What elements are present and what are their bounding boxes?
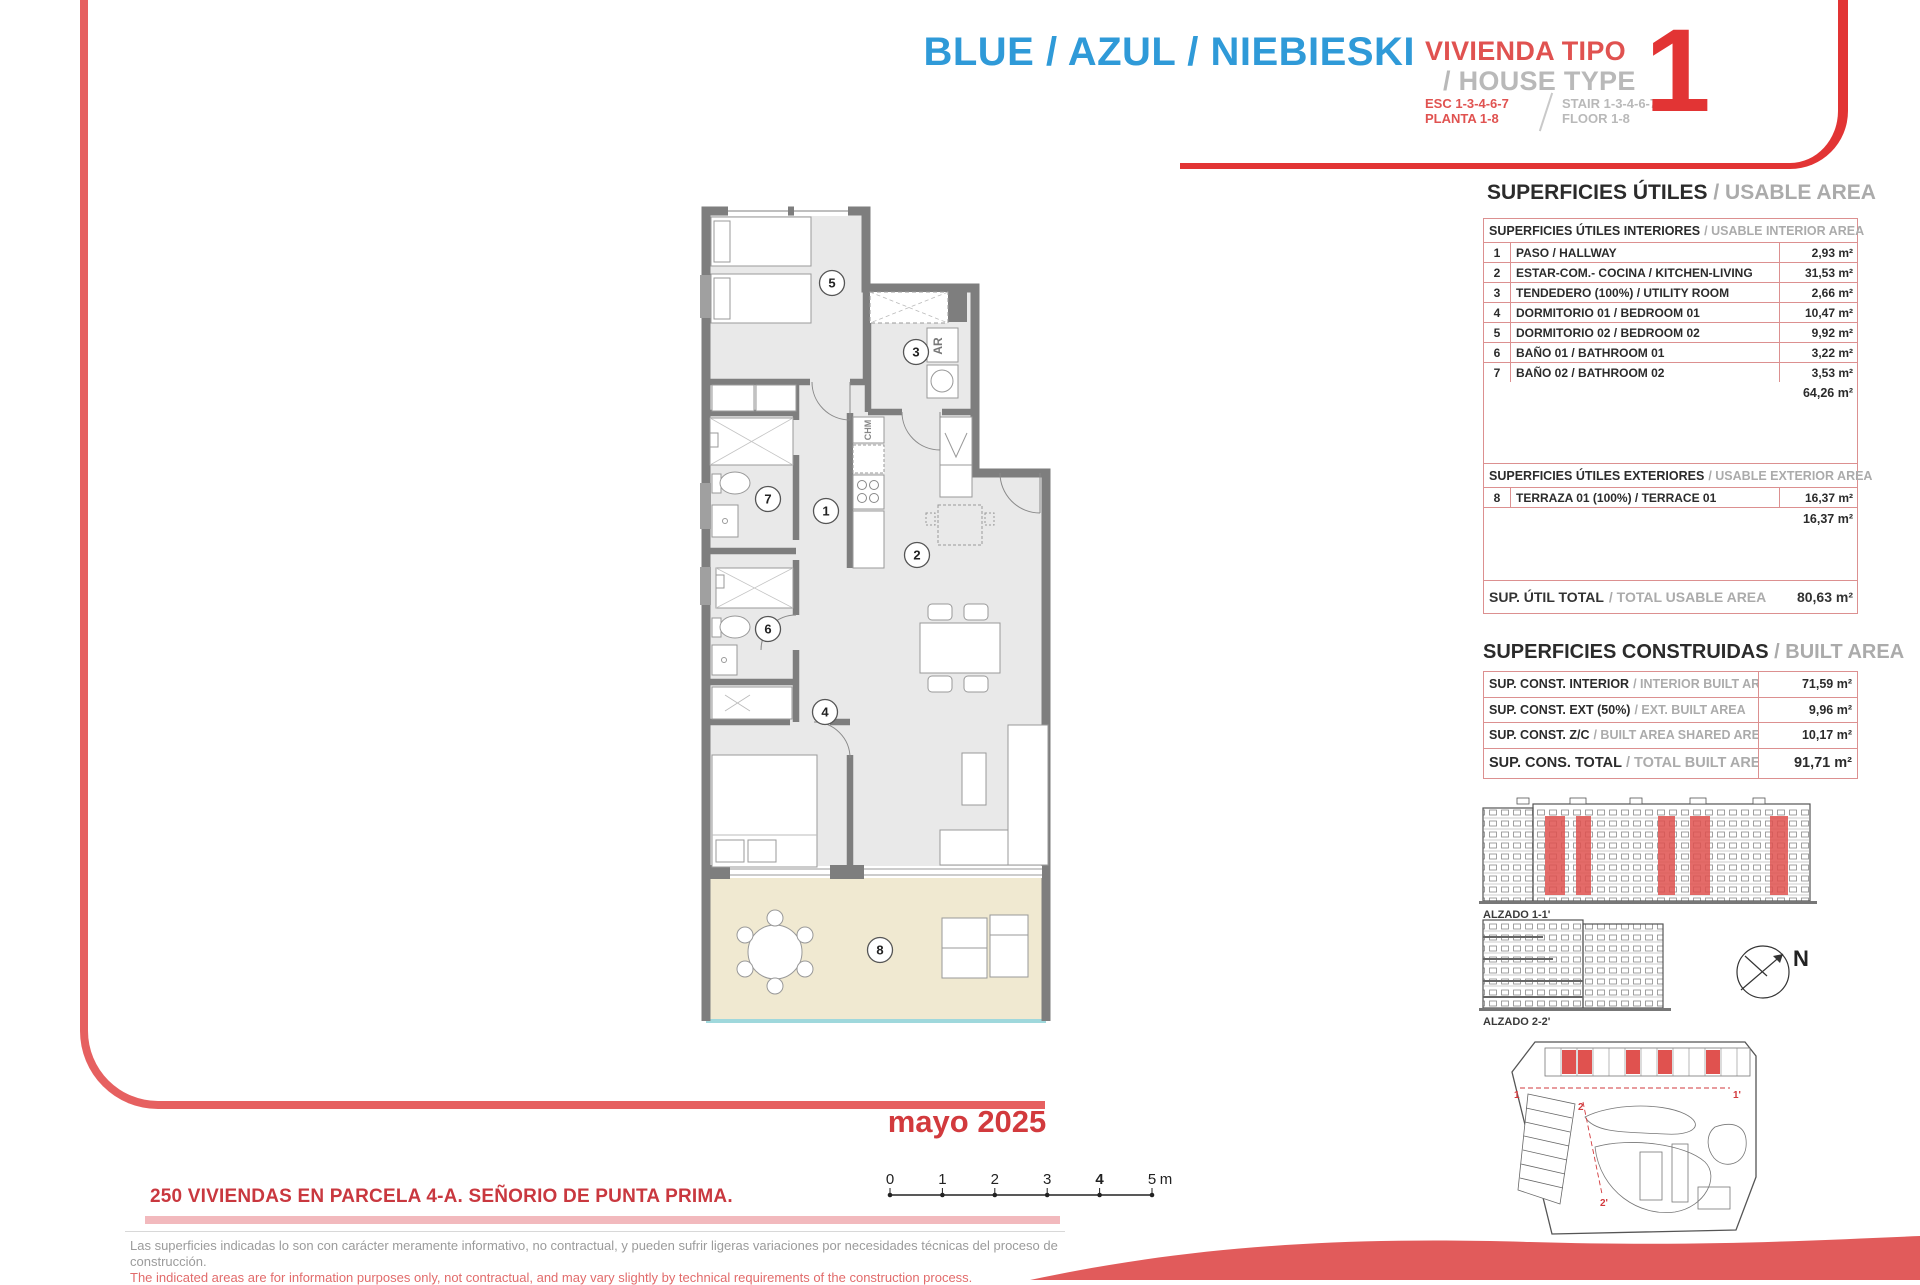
planta-line: PLANTA 1-8 — [1425, 111, 1509, 126]
room-number-8: 8 — [876, 943, 883, 958]
section-mark-2p: 2' — [1600, 1198, 1608, 1209]
site-plan: 1 1' 2 2' — [1500, 1032, 1770, 1242]
interior-header-en: / USABLE INTERIOR AREA — [1704, 224, 1864, 238]
row-area: 31,53 m² — [1779, 263, 1857, 282]
stair-floor-en: STAIR 1-3-4-6-7 FLOOR 1-8 — [1562, 96, 1657, 126]
built-title-en: / BUILT AREA — [1774, 641, 1904, 663]
total-label-es: SUP. ÚTIL TOTAL — [1489, 589, 1604, 605]
interior-header-es: SUPERFICIES ÚTILES INTERIORES — [1489, 224, 1700, 238]
row-num: 1 — [1484, 243, 1511, 262]
table-row: 7 BAÑO 02 / BATHROOM 02 3,53 m² — [1484, 363, 1857, 382]
row-label: BAÑO 01 / BATHROOM 01 — [1511, 343, 1779, 362]
usable-title-es: SUPERFICIES ÚTILES — [1487, 181, 1708, 204]
built-area-table: SUP. CONST. INTERIOR/ INTERIOR BUILT ARE… — [1483, 671, 1858, 779]
usable-area-table: SUPERFICIES ÚTILES INTERIORES / USABLE I… — [1483, 218, 1858, 614]
date-label: mayo 2025 — [882, 1104, 1052, 1140]
built-total-row: SUP. CONS. TOTAL/ TOTAL BUILT AREA 91,71… — [1484, 748, 1857, 778]
usable-title-en: / USABLE AREA — [1713, 181, 1876, 204]
row-label-en: / INTERIOR BUILT AREA — [1633, 677, 1758, 691]
room-number-7: 7 — [764, 492, 771, 507]
row-label: SUP. CONST. Z/C/ BUILT AREA SHARED AREAS — [1484, 723, 1758, 748]
room-number-2: 2 — [913, 548, 920, 563]
table-row: 3 TENDEDERO (100%) / UTILITY ROOM 2,66 m… — [1484, 283, 1857, 303]
built-area-title: SUPERFICIES CONSTRUIDAS / BUILT AREA — [1483, 641, 1904, 664]
row-num: 6 — [1484, 343, 1511, 362]
table-row: 8 TERRAZA 01 (100%) / TERRACE 01 16,37 m… — [1484, 488, 1857, 508]
row-area: 2,66 m² — [1779, 283, 1857, 302]
interior-subtotal: 64,26 m² — [1484, 382, 1857, 403]
table-row: SUP. CONST. INTERIOR/ INTERIOR BUILT ARE… — [1484, 672, 1857, 697]
row-num: 7 — [1484, 363, 1511, 382]
scale-4: 4 — [1095, 1171, 1104, 1188]
exterior-header-es: SUPERFICIES ÚTILES EXTERIORES — [1489, 469, 1704, 483]
ar-label: AR — [931, 337, 945, 355]
row-area: 16,37 m² — [1779, 488, 1857, 507]
disclaimer-es-line1: Las superficies indicadas lo son con car… — [130, 1238, 1090, 1253]
section-mark-1p: 1' — [1733, 1090, 1741, 1101]
table-row: 1 PASO / HALLWAY 2,93 m² — [1484, 243, 1857, 263]
usable-total-row: SUP. ÚTIL TOTAL / TOTAL USABLE AREA 80,6… — [1484, 580, 1857, 613]
table-row: SUP. CONST. Z/C/ BUILT AREA SHARED AREAS… — [1484, 722, 1857, 748]
interior-header: SUPERFICIES ÚTILES INTERIORES / USABLE I… — [1484, 219, 1857, 243]
ground-line — [1479, 1008, 1671, 1011]
scale-labels: 0 1 2 3 4 5 m — [886, 1171, 1172, 1188]
elevation-1: ALZADO 1-1' — [1475, 796, 1820, 924]
row-label: DORMITORIO 02 / BEDROOM 02 — [1511, 323, 1779, 342]
row-label: SUP. CONST. EXT (50%)/ EXT. BUILT AREA — [1484, 698, 1758, 723]
section-mark-1: 1 — [1514, 1090, 1520, 1101]
row-label-es: SUP. CONST. EXT (50%) — [1489, 703, 1630, 717]
esc-line: ESC 1-3-4-6-7 — [1425, 96, 1509, 111]
row-num: 5 — [1484, 323, 1511, 342]
row-label: TENDEDERO (100%) / UTILITY ROOM — [1511, 283, 1779, 302]
exterior-header-en: / USABLE EXTERIOR AREA — [1708, 469, 1872, 483]
scale-unit: m — [1160, 1171, 1173, 1188]
row-label: DORMITORIO 01 / BEDROOM 01 — [1511, 303, 1779, 322]
row-num: 4 — [1484, 303, 1511, 322]
scale-5: 5 — [1148, 1171, 1156, 1188]
row-area: 9,96 m² — [1758, 698, 1857, 723]
row-label: BAÑO 02 / BATHROOM 02 — [1511, 363, 1779, 382]
row-num: 8 — [1484, 488, 1511, 507]
row-label: TERRAZA 01 (100%) / TERRACE 01 — [1511, 488, 1779, 507]
row-area: 91,71 m² — [1758, 749, 1857, 778]
row-label: ESTAR-COM.- COCINA / KITCHEN-LIVING — [1511, 263, 1779, 282]
row-num: 3 — [1484, 283, 1511, 302]
terrace-glass-rail — [706, 1019, 1046, 1023]
disclaimer-en: The indicated areas are for information … — [130, 1270, 1090, 1285]
scale-3: 3 — [1043, 1171, 1051, 1188]
total-label-en: / TOTAL USABLE AREA — [1609, 589, 1766, 605]
room-number-3: 3 — [912, 345, 919, 360]
scale-ticks — [890, 1188, 1152, 1195]
footer-divider — [125, 1231, 1065, 1232]
disclaimer-es-line2: construcción. — [130, 1254, 1090, 1269]
row-label: SUP. CONS. TOTAL/ TOTAL BUILT AREA — [1484, 749, 1758, 778]
row-area: 10,17 m² — [1758, 723, 1857, 748]
elevation-2: ALZADO 2-2' N — [1475, 910, 1820, 1030]
row-label-en: / EXT. BUILT AREA — [1634, 703, 1745, 717]
stair-floor-es: ESC 1-3-4-6-7 PLANTA 1-8 — [1425, 96, 1509, 126]
row-label-es: SUP. CONST. INTERIOR — [1489, 677, 1629, 691]
room-number-4: 4 — [821, 705, 829, 720]
row-area: 71,59 m² — [1758, 672, 1857, 697]
pink-underline-band — [145, 1216, 1060, 1224]
room-number-6: 6 — [764, 622, 771, 637]
row-label-en: / BUILT AREA SHARED AREAS — [1593, 728, 1758, 742]
scale-2: 2 — [991, 1171, 999, 1188]
exterior-subtotal: 16,37 m² — [1484, 508, 1857, 529]
table-row: 6 BAÑO 01 / BATHROOM 01 3,22 m² — [1484, 343, 1857, 363]
elevation-2-label: ALZADO 2-2' — [1483, 1016, 1551, 1028]
house-type-number: 1 — [1645, 12, 1711, 130]
spacer — [1484, 403, 1857, 463]
table-row: 2 ESTAR-COM.- COCINA / KITCHEN-LIVING 31… — [1484, 263, 1857, 283]
roof-elements — [1517, 798, 1765, 804]
row-num: 2 — [1484, 263, 1511, 282]
house-type-label-es: VIVIENDA TIPO — [1425, 36, 1626, 67]
north-arrow: N — [1737, 946, 1809, 998]
floor-plan: AR CHM — [690, 195, 1065, 1035]
bedroom1-furniture — [712, 755, 817, 867]
built-title-es: SUPERFICIES CONSTRUIDAS — [1483, 641, 1769, 663]
stair-line: STAIR 1-3-4-6-7 — [1562, 96, 1657, 111]
row-area: 2,93 m² — [1779, 243, 1857, 262]
row-label-es: SUP. CONST. Z/C — [1489, 728, 1589, 742]
building-wing — [1483, 808, 1533, 901]
red-swoosh — [1000, 1228, 1920, 1280]
building-right — [1583, 924, 1663, 1008]
floor-line: FLOOR 1-8 — [1562, 111, 1657, 126]
scale-0: 0 — [886, 1171, 894, 1188]
project-title: 250 VIVIENDAS EN PARCELA 4-A. SEÑORIO DE… — [150, 1186, 733, 1208]
table-row: 5 DORMITORIO 02 / BEDROOM 02 9,92 m² — [1484, 323, 1857, 343]
row-area: 9,92 m² — [1779, 323, 1857, 342]
table-row: SUP. CONST. EXT (50%)/ EXT. BUILT AREA 9… — [1484, 697, 1857, 723]
chm-label: CHM — [863, 420, 873, 441]
section-mark-2: 2 — [1578, 1102, 1584, 1113]
row-area: 3,53 m² — [1779, 363, 1857, 382]
row-label-es: SUP. CONS. TOTAL — [1489, 755, 1622, 771]
row-label: PASO / HALLWAY — [1511, 243, 1779, 262]
ground-line — [1479, 901, 1817, 904]
row-label: SUP. CONST. INTERIOR/ INTERIOR BUILT ARE… — [1484, 672, 1758, 697]
spacer — [1484, 529, 1857, 580]
table-row: 4 DORMITORIO 01 / BEDROOM 01 10,47 m² — [1484, 303, 1857, 323]
total-area: 80,63 m² — [1797, 589, 1857, 605]
scale-bar: 0 1 2 3 4 5 m — [878, 1158, 1178, 1203]
row-label-en: / TOTAL BUILT AREA — [1626, 755, 1758, 771]
room-number-5: 5 — [828, 276, 835, 291]
north-label: N — [1793, 946, 1809, 971]
usable-area-title: SUPERFICIES ÚTILES / USABLE AREA — [1487, 181, 1876, 205]
row-area: 10,47 m² — [1779, 303, 1857, 322]
color-scheme-title: BLUE / AZUL / NIEBIESKI — [905, 30, 1415, 75]
room-number-1: 1 — [822, 504, 829, 519]
scale-1: 1 — [938, 1171, 946, 1188]
exterior-header: SUPERFICIES ÚTILES EXTERIORES / USABLE E… — [1484, 463, 1857, 488]
house-type-label-en: / HOUSE TYPE — [1443, 66, 1636, 97]
row-area: 3,22 m² — [1779, 343, 1857, 362]
